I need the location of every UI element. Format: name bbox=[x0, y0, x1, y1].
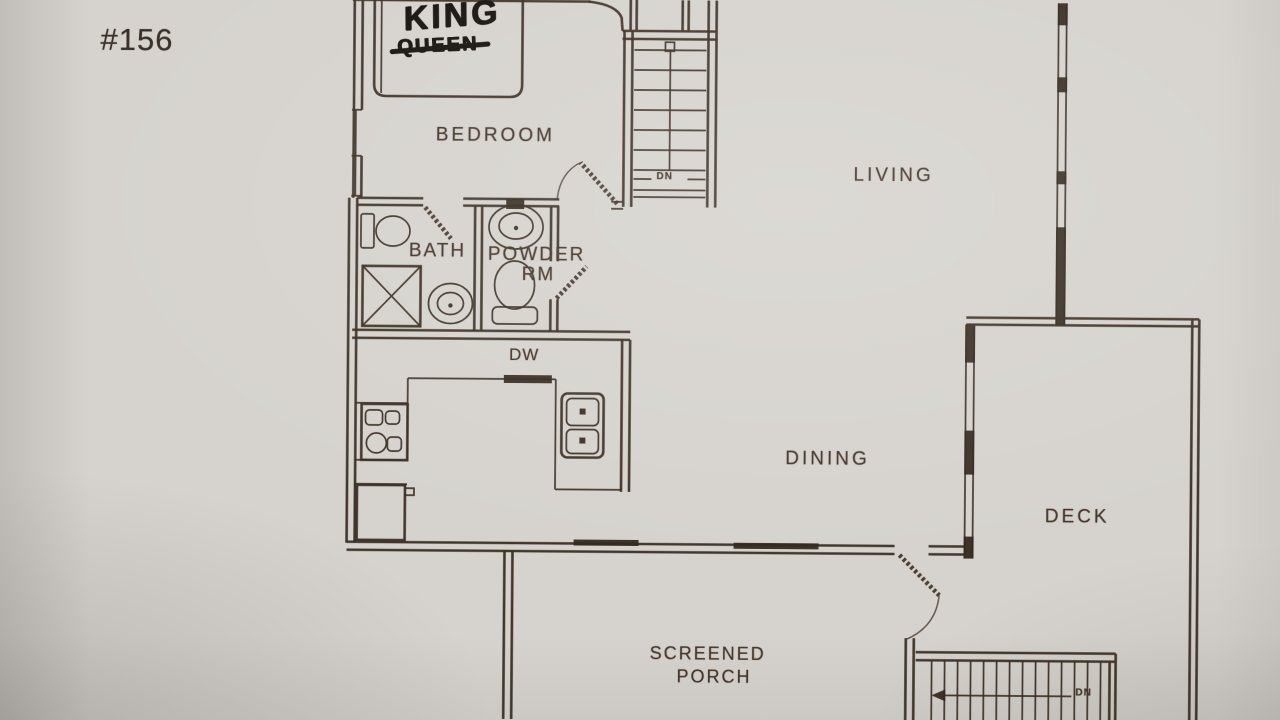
deck-label: DECK bbox=[1045, 506, 1110, 529]
bedroom-door bbox=[557, 162, 617, 203]
main-south-wall bbox=[347, 538, 965, 555]
dishwasher-label: DW bbox=[509, 345, 539, 365]
deck-stairs-dn-label: DN bbox=[1075, 687, 1092, 698]
shower-icon bbox=[362, 266, 420, 326]
bed-size-crossed-out: QUEEN bbox=[397, 33, 479, 60]
upper-stairs-dn-label: DN bbox=[656, 171, 673, 182]
bath-sink-icon bbox=[428, 283, 472, 323]
porch-west-wall bbox=[503, 551, 512, 719]
deck-staircase bbox=[905, 638, 1116, 720]
powder-room-label-line1: POWDER bbox=[488, 244, 586, 267]
dining-east-wall bbox=[963, 325, 975, 559]
powder-door bbox=[556, 266, 586, 298]
screened-porch-label-line2: PORCH bbox=[676, 666, 751, 688]
bath-label: BATH bbox=[409, 240, 466, 262]
closet-walls bbox=[623, 0, 717, 40]
kitchen-sink-icon bbox=[561, 393, 604, 457]
living-label: LIVING bbox=[853, 165, 933, 188]
living-east-wall bbox=[1055, 3, 1068, 325]
dining-deck-door bbox=[899, 555, 940, 639]
floor-plan: #156 KING QUEEN BEDROOM BATH POWDER RM D… bbox=[0, 0, 1280, 720]
refrigerator-icon bbox=[357, 485, 414, 540]
stove-icon bbox=[361, 404, 407, 460]
toilet-icon bbox=[361, 214, 410, 248]
powder-room-label-line2: RM bbox=[522, 264, 556, 286]
screened-porch-label-line1: SCREENED bbox=[650, 643, 766, 665]
kitchen-counter bbox=[355, 338, 630, 492]
floor-plan-photo: #156 KING QUEEN BEDROOM BATH POWDER RM D… bbox=[0, 0, 1280, 720]
bedroom-label: BEDROOM bbox=[436, 124, 555, 147]
floor-plan-linework bbox=[0, 0, 1280, 720]
unit-number-label: #156 bbox=[100, 22, 173, 59]
bath-door bbox=[425, 207, 451, 238]
dining-label: DINING bbox=[785, 448, 870, 471]
